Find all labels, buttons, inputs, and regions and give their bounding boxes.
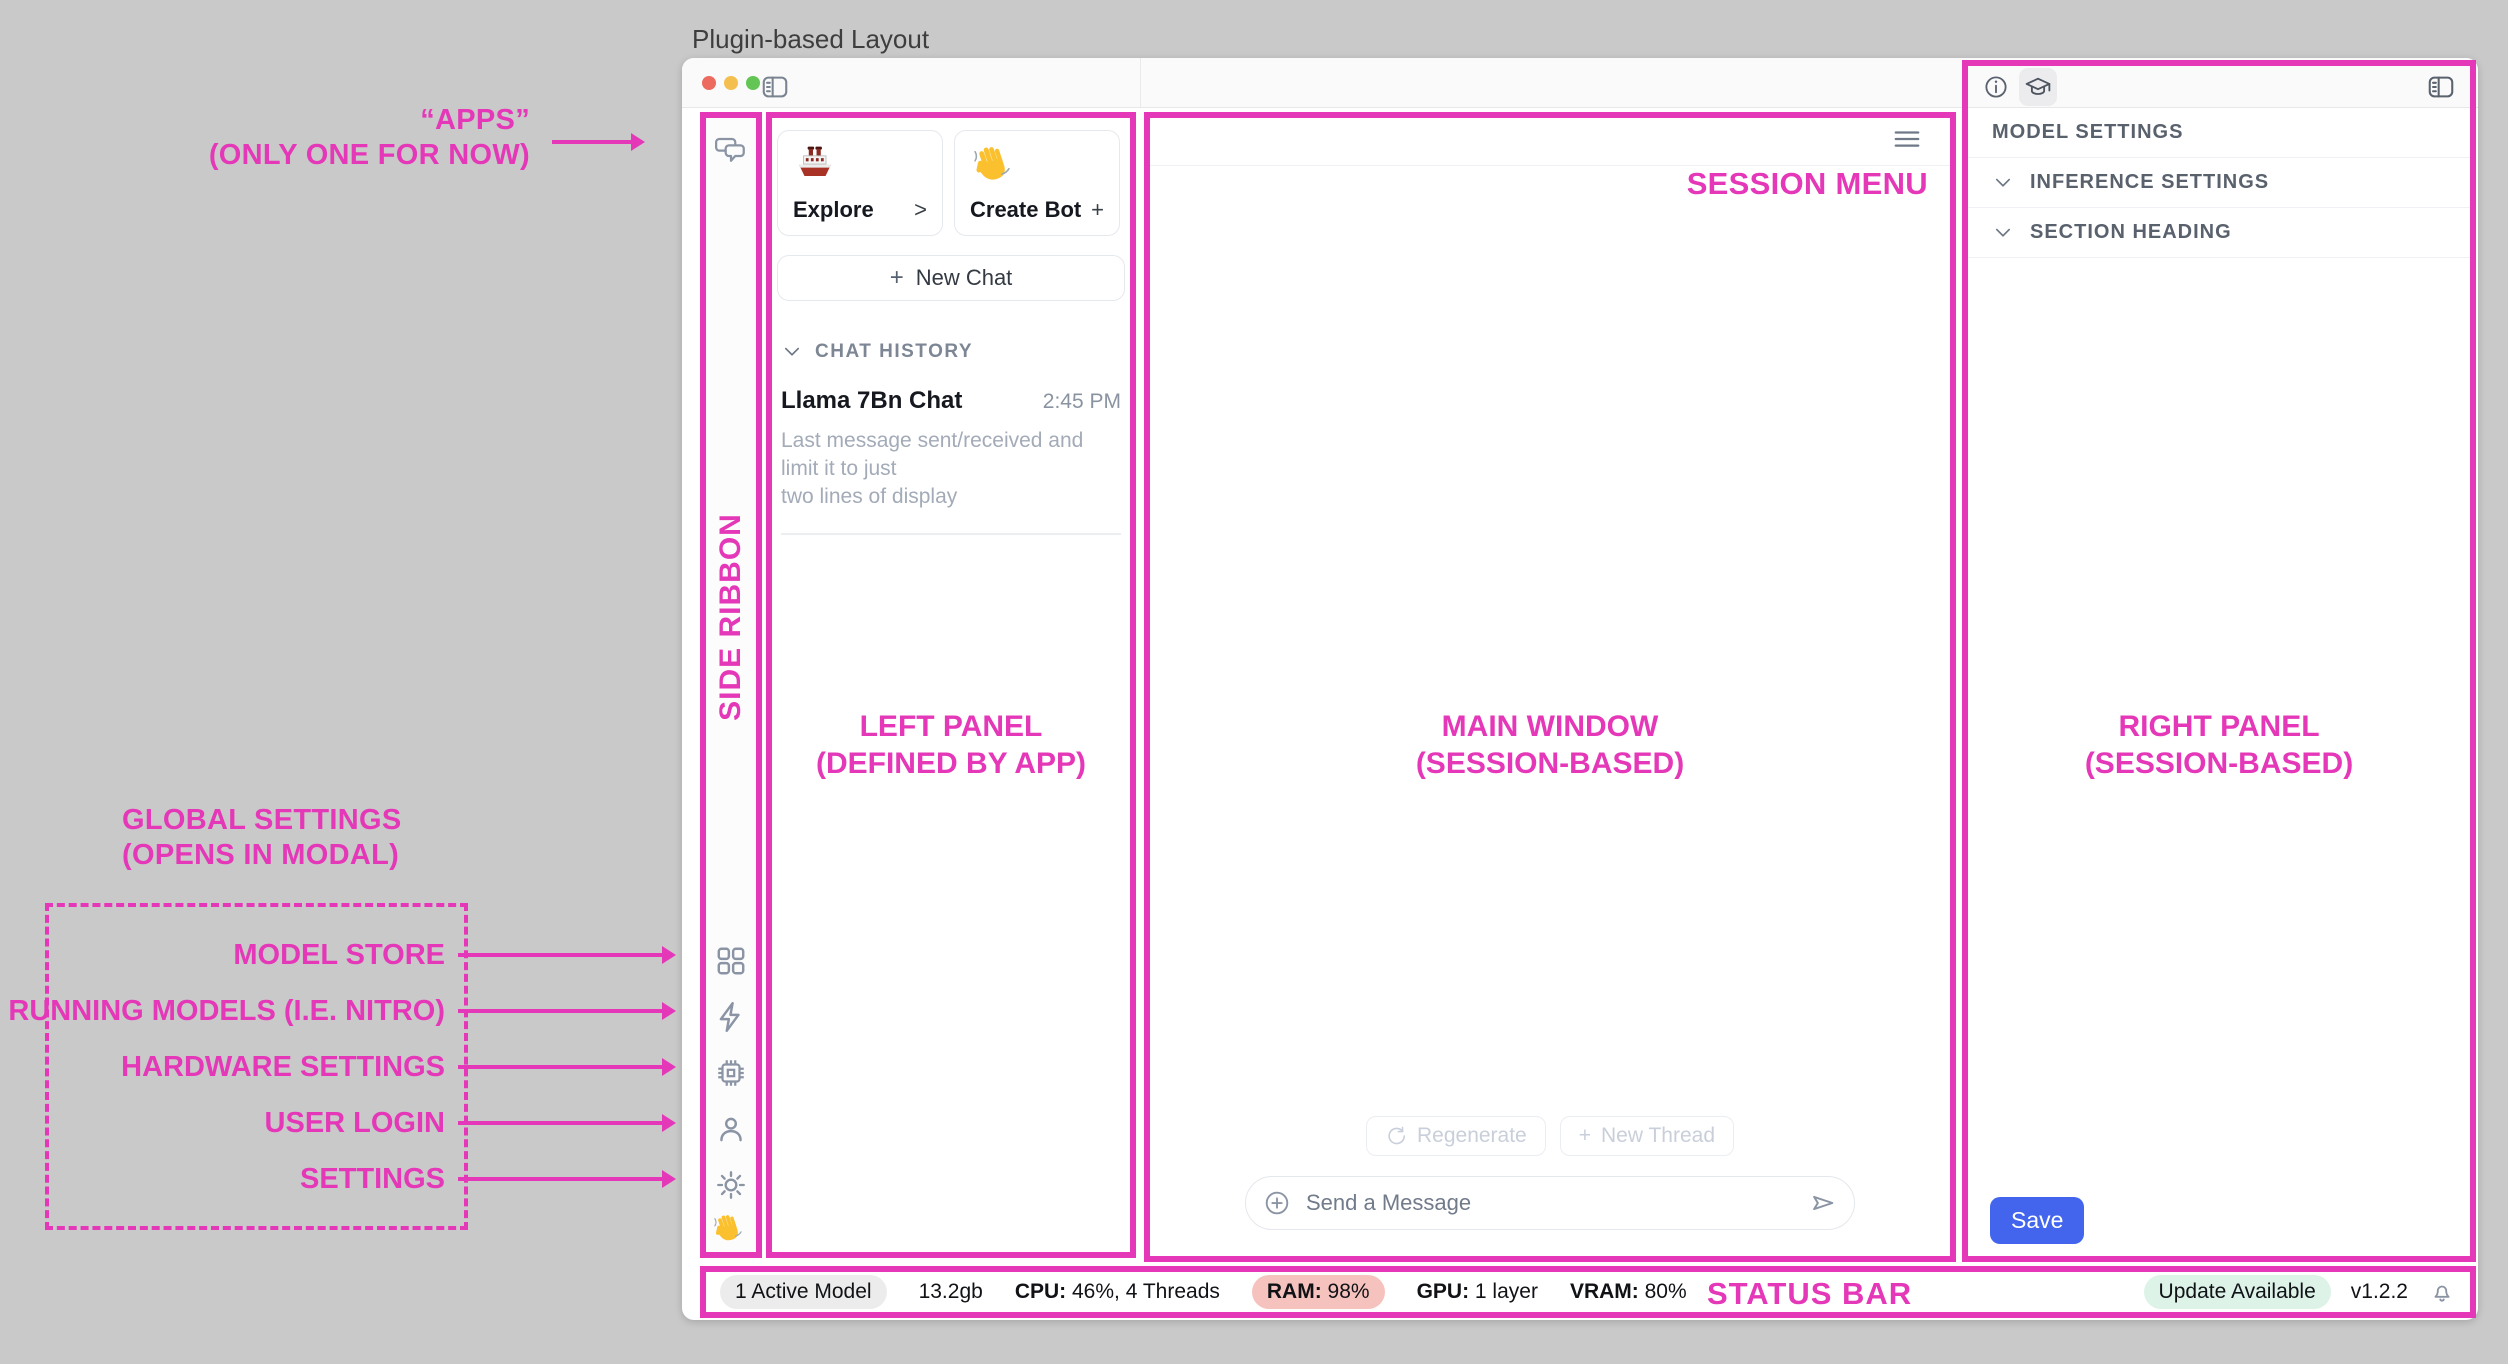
zoom-window-button[interactable] xyxy=(746,76,760,90)
annotation-global-settings: GLOBAL SETTINGS (OPENS IN MODAL) xyxy=(122,803,401,873)
inference-settings-row[interactable]: INFERENCE SETTINGS xyxy=(1968,158,2470,208)
running-models-icon[interactable] xyxy=(714,1000,748,1034)
annotation-arrow-user-login xyxy=(458,1121,663,1125)
annotation-arrow-settings xyxy=(458,1177,663,1181)
annotation-apps: “APPS” (ONLY ONE FOR NOW) xyxy=(205,103,530,173)
wave-emoji-icon[interactable] xyxy=(711,1212,751,1252)
create-bot-card-label: Create Bot xyxy=(970,197,1081,223)
right-panel: MODEL SETTINGS INFERENCE SETTINGS SECTIO… xyxy=(1962,60,2476,1262)
wave-emoji-icon xyxy=(970,143,1104,192)
chevron-down-icon xyxy=(781,341,803,363)
send-icon[interactable] xyxy=(1808,1188,1838,1218)
annotation-side-ribbon: SIDE RIBBON xyxy=(714,513,748,721)
session-menu-icon[interactable] xyxy=(1892,124,1922,159)
minimize-window-button[interactable] xyxy=(724,76,738,90)
chat-timestamp: 2:45 PM xyxy=(1043,390,1121,414)
close-window-button[interactable] xyxy=(702,76,716,90)
section-heading-row[interactable]: SECTION HEADING xyxy=(1968,208,2470,258)
left-panel: Explore > Create Bot + + New Chat xyxy=(766,112,1136,1258)
right-panel-header xyxy=(1968,66,2470,108)
annotation-session-menu: SESSION MENU xyxy=(1498,166,1928,202)
update-available-badge[interactable]: Update Available xyxy=(2144,1275,2331,1309)
new-thread-button[interactable]: + New Thread xyxy=(1560,1116,1734,1156)
explore-card-label: Explore xyxy=(793,197,874,223)
graduation-cap-icon[interactable] xyxy=(2019,68,2057,106)
info-icon[interactable] xyxy=(1982,73,2010,101)
status-bar: 1 Active Model 13.2gb CPU: 46%, 4 Thread… xyxy=(700,1266,2476,1318)
design-canvas: Plugin-based Layout xyxy=(0,0,2508,1364)
ship-emoji-icon xyxy=(793,143,927,192)
cpu-stat: CPU: 46%, 4 Threads xyxy=(1015,1280,1220,1304)
main-window-topbar xyxy=(1150,118,1950,166)
active-model-badge: 1 Active Model xyxy=(720,1275,887,1309)
regenerate-label: Regenerate xyxy=(1417,1124,1527,1148)
model-settings-row: MODEL SETTINGS xyxy=(1968,108,2470,158)
sidebar-toggle-icon[interactable] xyxy=(760,72,790,107)
create-bot-card[interactable]: Create Bot + xyxy=(954,130,1120,236)
message-composer xyxy=(1245,1176,1855,1230)
annotation-hardware-settings: HARDWARE SETTINGS xyxy=(0,1050,445,1084)
inference-settings-label: INFERENCE SETTINGS xyxy=(2030,171,2269,194)
plus-icon: + xyxy=(1579,1124,1591,1148)
hardware-settings-icon[interactable] xyxy=(714,1056,748,1090)
new-thread-label: New Thread xyxy=(1601,1124,1715,1148)
version-label: v1.2.2 xyxy=(2351,1280,2408,1304)
settings-gear-icon[interactable] xyxy=(714,1168,748,1202)
save-button[interactable]: Save xyxy=(1990,1197,2084,1244)
refresh-icon xyxy=(1385,1125,1407,1147)
chat-history-item[interactable]: Llama 7Bn Chat 2:45 PM Last message sent… xyxy=(777,387,1125,535)
bell-icon[interactable] xyxy=(2428,1278,2456,1306)
vram-stat: VRAM: 80% xyxy=(1570,1280,1687,1304)
user-login-icon[interactable] xyxy=(714,1112,748,1146)
annotation-right-panel: RIGHT PANEL (SESSION-BASED) xyxy=(2085,708,2353,782)
model-settings-label: MODEL SETTINGS xyxy=(1992,121,2183,144)
annotation-arrow-model-store xyxy=(458,953,663,957)
chat-preview-line1: Last message sent/received and limit it … xyxy=(781,427,1121,483)
section-heading-label: SECTION HEADING xyxy=(2030,221,2232,244)
model-store-icon[interactable] xyxy=(714,944,748,978)
ram-stat-badge: RAM: 98% xyxy=(1252,1275,1385,1309)
model-size: 13.2gb xyxy=(919,1280,983,1304)
annotation-left-panel: LEFT PANEL (DEFINED BY APP) xyxy=(816,708,1086,782)
plus-icon: + xyxy=(890,264,904,292)
annotation-arrow-hardware-settings xyxy=(458,1065,663,1069)
chat-app-icon[interactable] xyxy=(714,131,748,165)
chat-preview-line2: two lines of display xyxy=(781,483,1121,511)
annotation-running-models: RUNNING MODELS (I.E. NITRO) xyxy=(0,994,445,1028)
annotation-settings: SETTINGS xyxy=(0,1162,445,1196)
explore-card-chevron: > xyxy=(914,197,927,223)
new-chat-label: New Chat xyxy=(916,265,1013,291)
page-title: Plugin-based Layout xyxy=(692,24,929,55)
annotation-model-store: MODEL STORE xyxy=(0,938,445,972)
chat-history-header[interactable]: CHAT HISTORY xyxy=(777,341,1125,363)
main-window: Regenerate + New Thread xyxy=(1144,112,1956,1262)
list-divider xyxy=(781,533,1121,535)
chevron-down-icon xyxy=(1992,222,2014,244)
annotation-main-window: MAIN WINDOW (SESSION-BASED) xyxy=(1416,708,1684,782)
traffic-lights xyxy=(702,76,760,90)
new-chat-button[interactable]: + New Chat xyxy=(777,255,1125,301)
annotation-arrow-running-models xyxy=(458,1009,663,1013)
titlebar-divider xyxy=(1140,58,1141,108)
chat-history-label: CHAT HISTORY xyxy=(815,341,973,363)
attach-plus-icon[interactable] xyxy=(1262,1188,1292,1218)
explore-card[interactable]: Explore > xyxy=(777,130,943,236)
message-input[interactable] xyxy=(1306,1190,1794,1216)
annotation-status-bar: STATUS BAR xyxy=(1707,1276,1912,1312)
regenerate-button[interactable]: Regenerate xyxy=(1366,1116,1546,1156)
chat-title: Llama 7Bn Chat xyxy=(781,387,962,415)
gpu-stat: GPU: 1 layer xyxy=(1417,1280,1538,1304)
annotation-arrow-apps xyxy=(552,140,632,144)
annotation-user-login: USER LOGIN xyxy=(0,1106,445,1140)
create-bot-card-plus: + xyxy=(1091,197,1104,223)
panel-toggle-icon[interactable] xyxy=(2426,72,2456,102)
chevron-down-icon xyxy=(1992,172,2014,194)
